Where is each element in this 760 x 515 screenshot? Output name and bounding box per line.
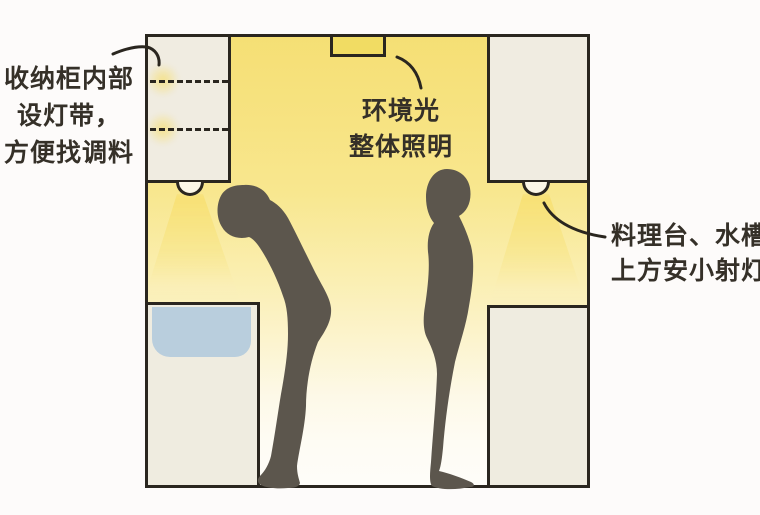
kitchen-lighting-diagram: 收纳柜内部 设灯带， 方便找调料 环境光 整体照明 料理台、水槽 上方安小射灯 — [0, 0, 760, 515]
annotation-line: 设灯带， — [0, 97, 138, 134]
annotation-line: 收纳柜内部 — [0, 60, 138, 97]
storage-cabinet — [145, 34, 231, 183]
annotation-line: 方便找调料 — [0, 134, 138, 171]
sink-basin — [152, 307, 251, 357]
sink-counter — [145, 302, 260, 488]
annotation-task-light: 料理台、水槽 上方安小射灯 — [611, 218, 760, 288]
annotation-ambient-light: 环境光 整体照明 — [336, 93, 466, 165]
worktop-counter — [487, 305, 590, 488]
wall-cabinet — [487, 34, 590, 183]
annotation-line: 整体照明 — [336, 129, 466, 165]
annotation-line: 上方安小射灯 — [611, 253, 760, 288]
annotation-cabinet-light: 收纳柜内部 设灯带， 方便找调料 — [0, 60, 138, 171]
ceiling-lamp-icon — [330, 36, 386, 57]
annotation-line: 料理台、水槽 — [611, 218, 760, 253]
shelf-dashed-line — [150, 128, 228, 131]
annotation-line: 环境光 — [336, 93, 466, 129]
shelf-dashed-line — [150, 80, 228, 83]
